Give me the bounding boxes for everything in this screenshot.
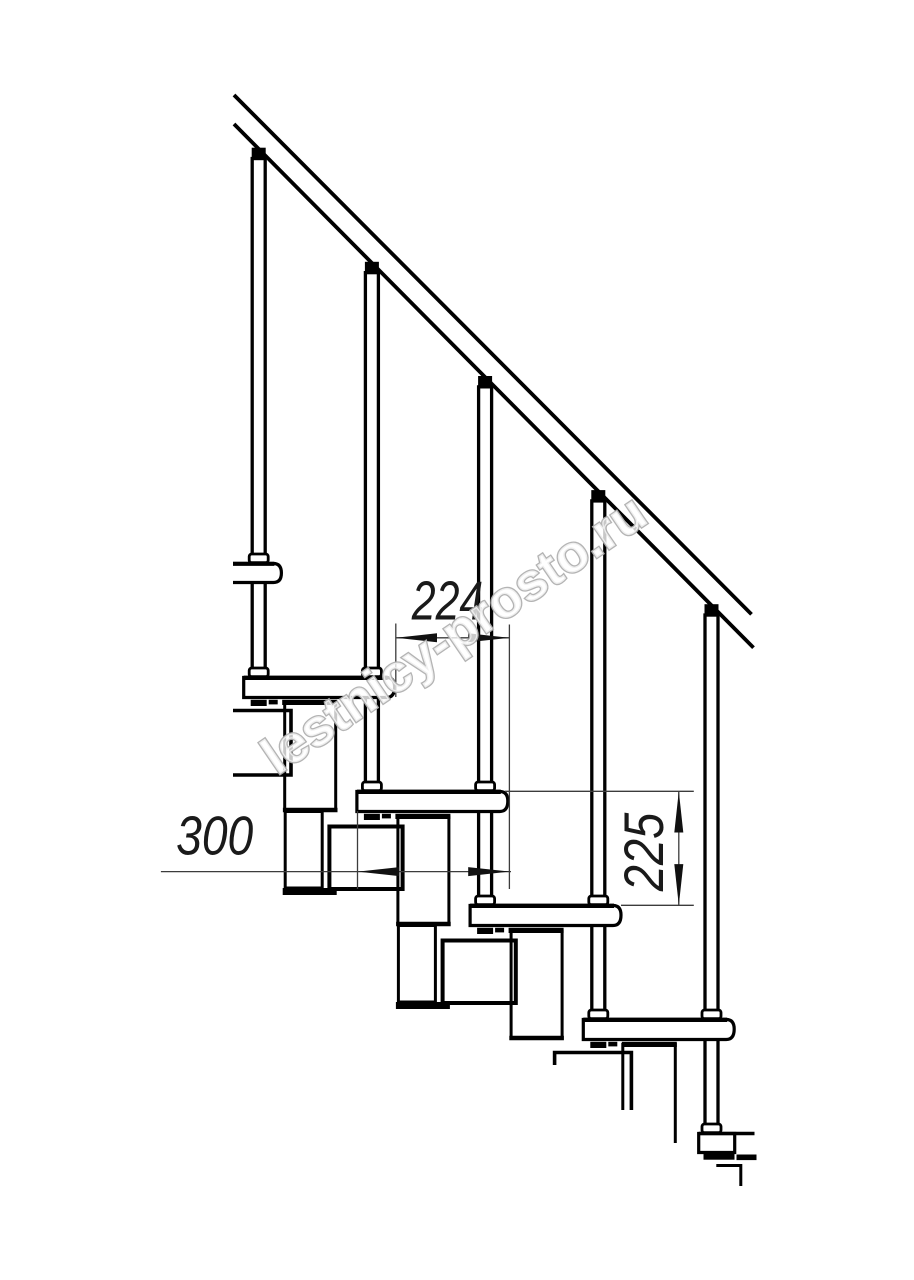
svg-text:300: 300 (176, 805, 253, 867)
svg-text:225: 225 (612, 813, 675, 893)
